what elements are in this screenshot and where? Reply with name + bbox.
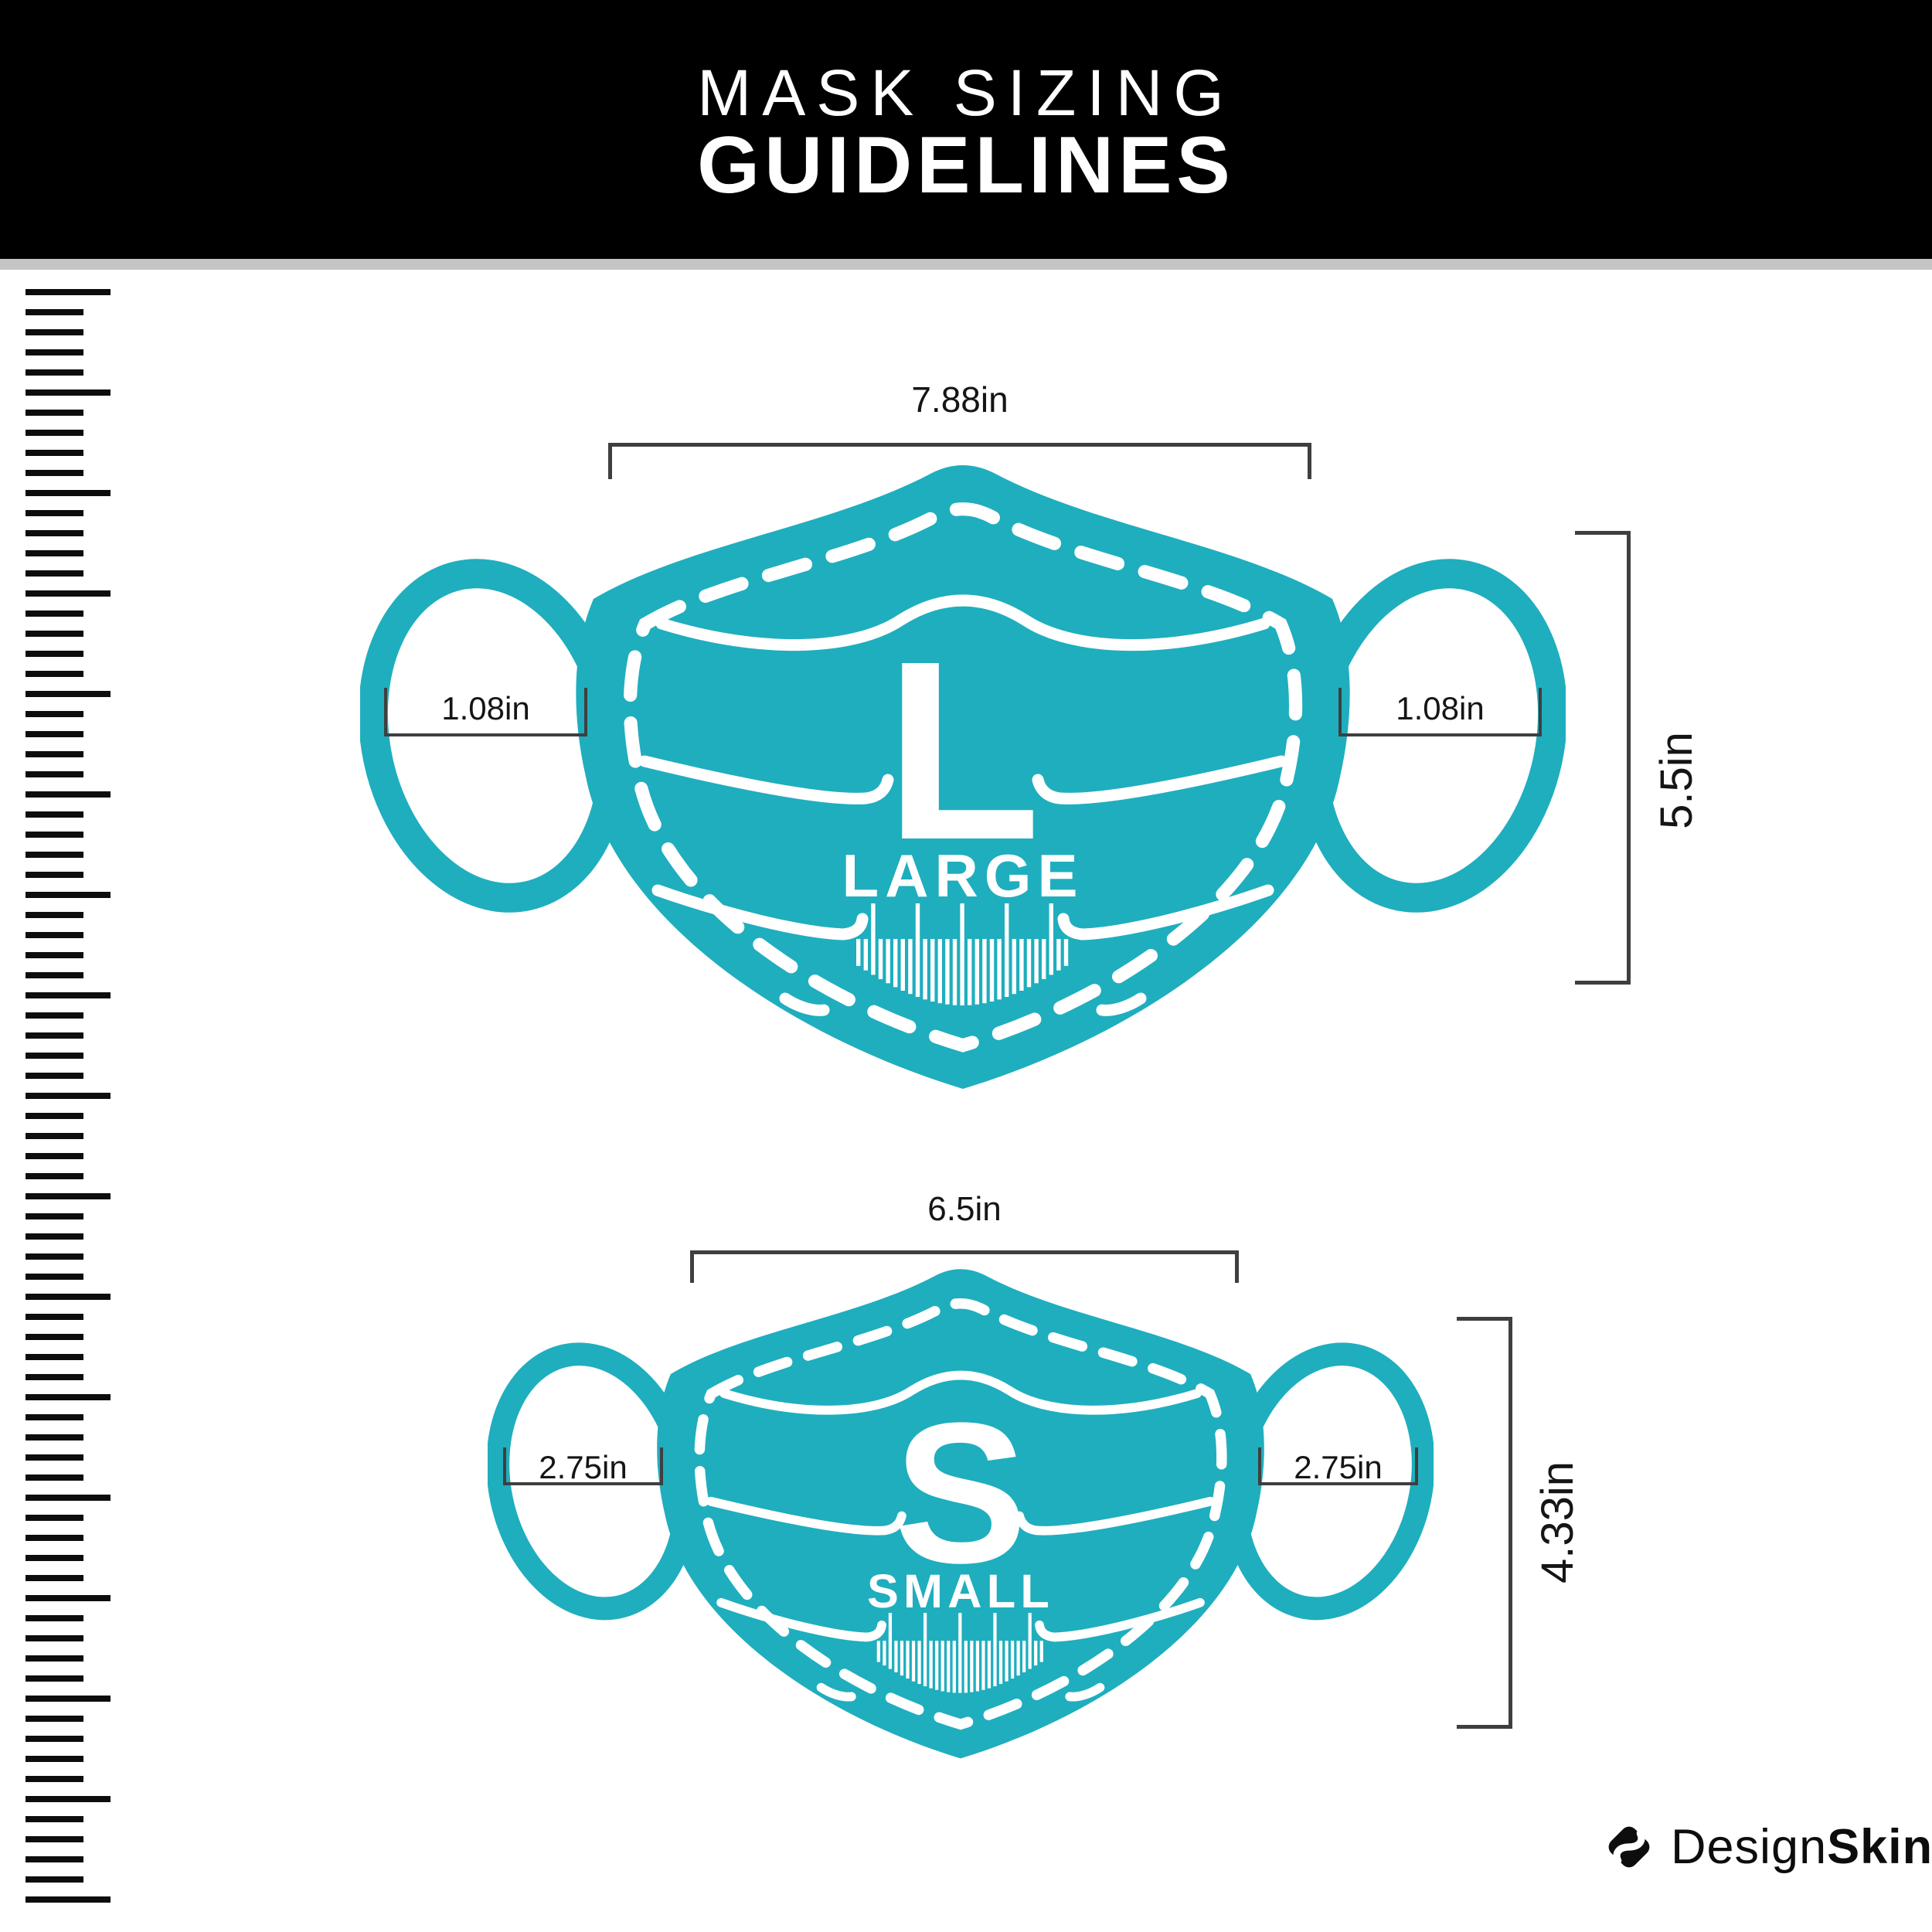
ruler-tick bbox=[26, 1053, 83, 1059]
ruler-tick bbox=[26, 1716, 83, 1722]
ruler-tick bbox=[26, 1736, 83, 1742]
ruler-tick bbox=[26, 1595, 111, 1601]
ruler-tick bbox=[26, 430, 83, 436]
ruler-tick bbox=[26, 1193, 111, 1199]
ruler-tick bbox=[26, 771, 83, 777]
ruler-tick bbox=[26, 1374, 83, 1380]
ruler-tick bbox=[26, 671, 83, 677]
ruler-tick bbox=[26, 1555, 83, 1561]
ruler-tick bbox=[26, 510, 83, 516]
ruler-tick bbox=[26, 912, 83, 918]
ruler-tick bbox=[26, 1675, 83, 1682]
large-mask-illustration: L LARGE bbox=[360, 461, 1566, 1095]
ruler-tick bbox=[26, 289, 111, 295]
small-height-label: 4.33in bbox=[1535, 1406, 1581, 1638]
ruler-tick bbox=[26, 992, 111, 998]
ruler-tick bbox=[26, 852, 83, 858]
ruler-tick bbox=[26, 1816, 83, 1822]
ruler-tick bbox=[26, 972, 83, 978]
ruler-tick bbox=[26, 1635, 83, 1641]
large-height-bracket bbox=[1575, 531, 1631, 985]
header-divider bbox=[0, 259, 1932, 270]
ruler-tick bbox=[26, 691, 111, 697]
ruler-tick bbox=[26, 1776, 83, 1782]
ruler-tick bbox=[26, 1856, 83, 1862]
ruler-tick bbox=[26, 1133, 83, 1139]
ruler-tick bbox=[26, 731, 83, 737]
ruler-tick bbox=[26, 811, 83, 818]
large-height-label: 5.5in bbox=[1654, 665, 1700, 896]
ruler-tick bbox=[26, 590, 111, 597]
ruler-tick bbox=[26, 550, 83, 556]
ruler-tick bbox=[26, 1173, 83, 1179]
ruler-tick bbox=[26, 369, 83, 376]
ruler-tick bbox=[26, 1354, 83, 1360]
ruler-tick bbox=[26, 1756, 83, 1762]
ruler-tick bbox=[26, 1836, 83, 1842]
ruler-tick bbox=[26, 1414, 83, 1420]
ruler-tick bbox=[26, 1696, 111, 1702]
large-ear-bracket-left bbox=[384, 688, 587, 736]
brand-logo: DesignSkinz bbox=[1597, 1815, 1932, 1879]
ruler-tick bbox=[26, 711, 83, 717]
ruler-tick bbox=[26, 1495, 111, 1501]
ruler-tick bbox=[26, 1012, 83, 1019]
ruler-tick bbox=[26, 1113, 83, 1119]
ruler-tick bbox=[26, 1515, 83, 1521]
infographic-canvas: MASK SIZING GUIDELINES 7.88in L LARGE 1.… bbox=[0, 0, 1932, 1932]
ruler-tick bbox=[26, 490, 111, 496]
brand-name-bold: Skinz bbox=[1827, 1820, 1932, 1874]
ruler-tick bbox=[26, 1535, 83, 1541]
ruler-tick bbox=[26, 1434, 83, 1440]
small-mask-illustration: S SMALL bbox=[488, 1266, 1434, 1764]
ruler-tick bbox=[26, 309, 83, 315]
ruler-tick bbox=[26, 1575, 83, 1581]
brand-logo-icon bbox=[1597, 1815, 1662, 1879]
ruler-tick bbox=[26, 952, 83, 958]
ruler-tick bbox=[26, 1655, 83, 1662]
large-ear-bracket-right bbox=[1338, 688, 1542, 736]
ruler-tick bbox=[26, 1615, 83, 1621]
mask-size-word: LARGE bbox=[842, 842, 1084, 910]
ruler-tick bbox=[26, 450, 83, 456]
ruler-tick bbox=[26, 1274, 83, 1280]
small-width-label: 6.5in bbox=[690, 1192, 1239, 1226]
ruler-tick bbox=[26, 631, 83, 637]
mask-size-word: SMALL bbox=[867, 1565, 1054, 1617]
brand-name-regular: Design bbox=[1671, 1820, 1827, 1874]
ruler-tick bbox=[26, 1394, 111, 1400]
ruler-tick bbox=[26, 1073, 83, 1079]
ruler-tick bbox=[26, 872, 83, 878]
ruler-tick bbox=[26, 389, 111, 396]
ruler-tick bbox=[26, 1896, 111, 1903]
ruler-tick bbox=[26, 1454, 83, 1461]
ruler-tick bbox=[26, 1314, 83, 1320]
ruler-tick bbox=[26, 1233, 83, 1240]
ruler-tick bbox=[26, 329, 83, 335]
ruler-tick bbox=[26, 611, 83, 617]
small-ear-bracket-left bbox=[503, 1447, 663, 1485]
ruler bbox=[26, 289, 111, 1917]
page-title-line2: GUIDELINES bbox=[0, 125, 1932, 206]
ruler-tick bbox=[26, 1032, 83, 1039]
ruler-tick bbox=[26, 1093, 111, 1099]
ruler-tick bbox=[26, 1153, 83, 1159]
ruler-tick bbox=[26, 1253, 83, 1260]
ruler-tick bbox=[26, 349, 83, 355]
small-ear-bracket-right bbox=[1258, 1447, 1418, 1485]
ruler-tick bbox=[26, 751, 83, 757]
ruler-tick bbox=[26, 410, 83, 416]
brand-logo-text: DesignSkinz bbox=[1671, 1819, 1932, 1875]
ruler-tick bbox=[26, 932, 83, 938]
ruler-tick bbox=[26, 1796, 111, 1802]
ruler-tick bbox=[26, 570, 83, 577]
ruler-tick bbox=[26, 1294, 111, 1300]
small-height-bracket bbox=[1457, 1317, 1512, 1729]
large-width-label: 7.88in bbox=[608, 382, 1311, 417]
ruler-tick bbox=[26, 832, 83, 838]
page-title-line1: MASK SIZING bbox=[0, 60, 1932, 125]
ruler-tick bbox=[26, 1876, 83, 1883]
ruler-tick bbox=[26, 1475, 83, 1481]
ruler-tick bbox=[26, 530, 83, 536]
ruler-tick bbox=[26, 892, 111, 898]
ruler-tick bbox=[26, 470, 83, 476]
ruler-tick bbox=[26, 651, 83, 657]
ruler-tick bbox=[26, 1213, 83, 1219]
ruler-tick bbox=[26, 791, 111, 798]
ruler-tick bbox=[26, 1334, 83, 1340]
